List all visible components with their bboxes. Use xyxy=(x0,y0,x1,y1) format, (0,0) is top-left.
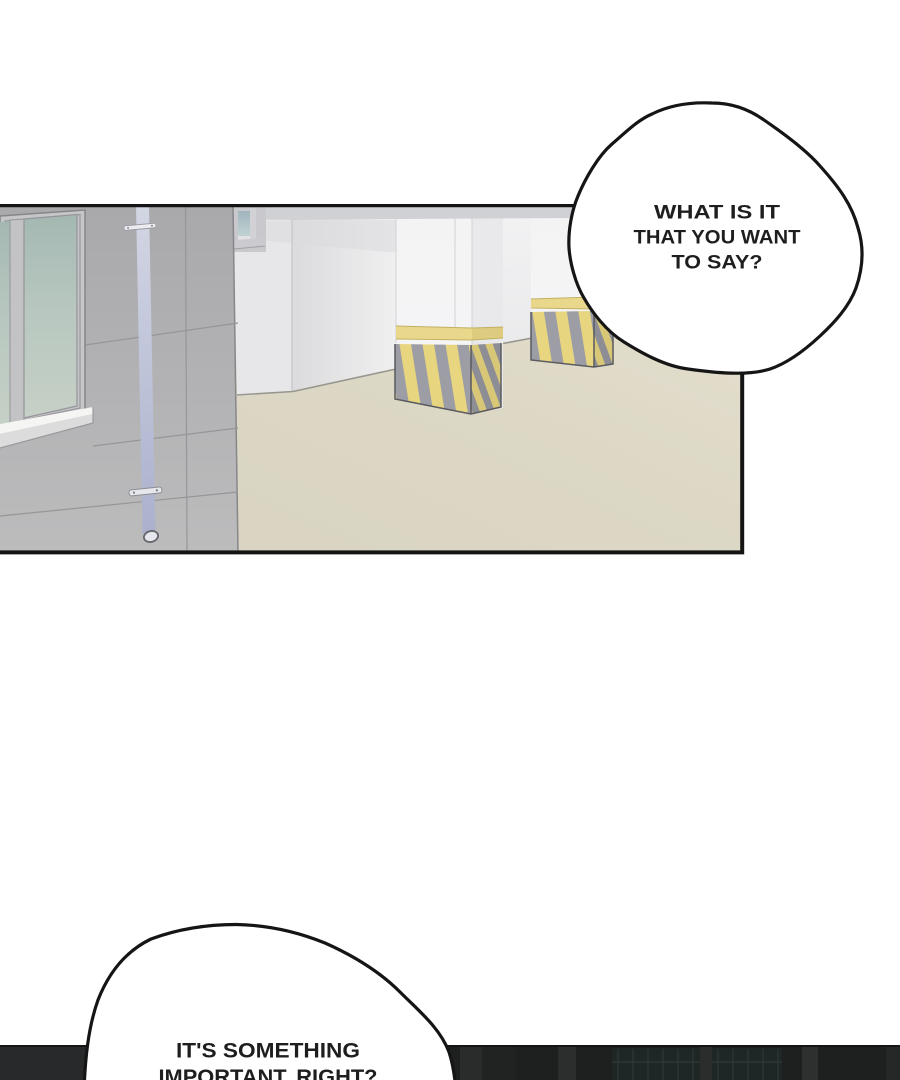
svg-text:WHAT IS IT: WHAT IS IT xyxy=(654,202,780,224)
svg-text:THAT YOU WANT: THAT YOU WANT xyxy=(634,227,801,249)
svg-text:IT'S SOMETHING: IT'S SOMETHING xyxy=(176,1039,360,1063)
svg-text:TO SAY?: TO SAY? xyxy=(672,252,763,274)
svg-text:IMPORTANT, RIGHT?: IMPORTANT, RIGHT? xyxy=(159,1065,378,1080)
